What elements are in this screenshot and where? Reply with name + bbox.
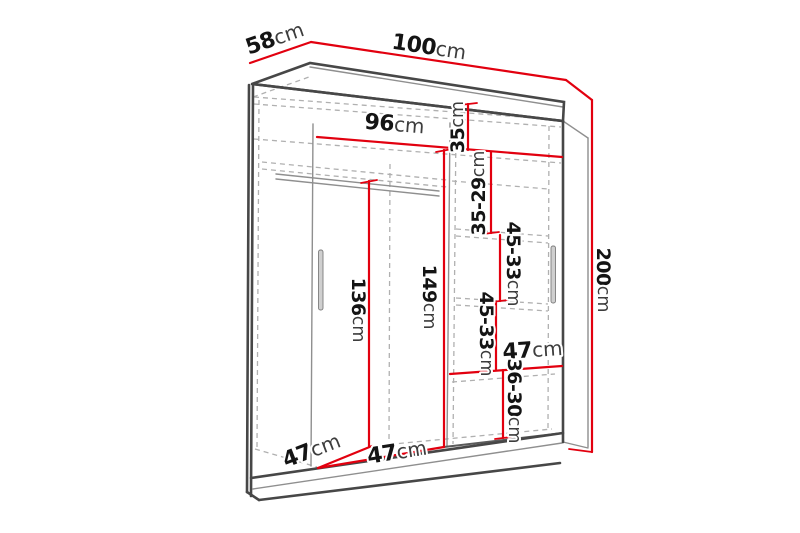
dim-label-shelf-gap-1: 35-29cm <box>468 151 490 236</box>
right-door-handle <box>551 246 556 303</box>
left-door-handle <box>319 250 324 310</box>
dimension-lines <box>250 42 592 468</box>
dim-label-shelf-gap-3: 45-33cm <box>476 292 498 377</box>
right-face-bottom-edge <box>563 442 588 448</box>
left-inner-edge <box>251 85 253 496</box>
dim-label-width-top: 100cm <box>390 30 468 66</box>
dim-label-hanging-height: 136cm <box>348 278 370 343</box>
plinth-left-corner <box>247 492 259 500</box>
dim-label-shelf-gap-2: 45-33cm <box>503 222 525 307</box>
wardrobe-dimension-diagram: 58cm 100cm 96cm 35cm 35-29cm 45-33cm 45-… <box>0 0 800 533</box>
hanging-rod <box>276 179 439 196</box>
left-door-edge-line <box>311 124 313 466</box>
dim-label-interior-width: 96cm <box>364 110 426 140</box>
dim-tick <box>569 449 592 452</box>
diagram-canvas: 58cm 100cm 96cm 35cm 35-29cm 45-33cm 45-… <box>0 0 800 533</box>
dim-label-top-shelf: 35cm <box>447 101 469 153</box>
dim-line-height-connector <box>566 80 592 100</box>
right-face-top-edge <box>563 121 588 138</box>
dim-label-middle-height: 149cm <box>419 265 441 330</box>
dim-label-height: 200cm <box>593 248 615 313</box>
dim-label-bottom-gap: 36-30cm <box>504 359 526 444</box>
door-split-line <box>447 123 450 446</box>
left-outer-edge <box>247 85 249 492</box>
